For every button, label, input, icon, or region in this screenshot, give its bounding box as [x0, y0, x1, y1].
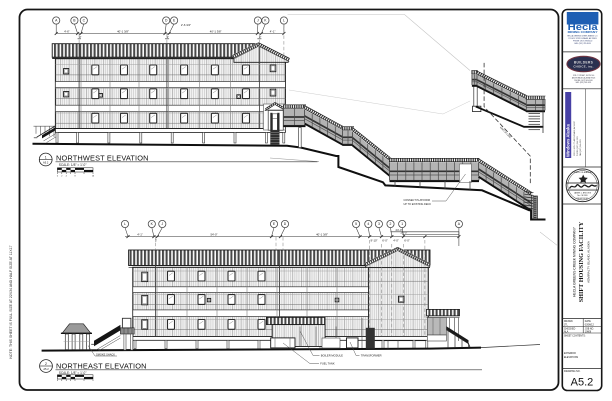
svg-text:10606: 10606 [585, 332, 592, 334]
svg-text:1: 1 [401, 222, 403, 226]
svg-text:6'-0": 6'-0" [404, 239, 410, 243]
svg-text:REGISTERED: REGISTERED [577, 198, 589, 200]
svg-text:SCALE: 1/8" = 1'-0": SCALE: 1/8" = 1'-0" [59, 163, 87, 167]
svg-text:HECLA GREENS CREEK MINING COMP: HECLA GREENS CREEK MINING COMPANY [573, 226, 577, 297]
svg-text:03/06/12: 03/06/12 [585, 325, 595, 327]
svg-text:SHEET CONTENTS:: SHEET CONTENTS: [564, 336, 586, 338]
svg-text:FAX: (907) 789-8143: FAX: (907) 789-8143 [574, 42, 590, 45]
svg-text:DATE: DATE [585, 320, 591, 323]
svg-text:JOB NO.: JOB NO. [585, 329, 595, 331]
svg-text:Windows Alaska: Windows Alaska [566, 123, 571, 157]
svg-text:JAMES L. BROOKS: JAMES L. BROOKS [574, 192, 592, 195]
svg-text:ALA: ALA [564, 331, 569, 334]
svg-text:No. CE 8320: No. CE 8320 [577, 195, 587, 197]
svg-text:MINING COMPANY: MINING COMPANY [568, 30, 598, 34]
svg-text:20'-0": 20'-0" [400, 231, 407, 235]
svg-text:2: 2 [45, 362, 47, 366]
svg-text:BOILER MODULE: BOILER MODULE [321, 353, 343, 357]
svg-text:A5.2: A5.2 [43, 161, 49, 165]
svg-text:NORTHWEST ELEVATION: NORTHWEST ELEVATION [56, 153, 149, 162]
svg-text:5: 5 [355, 222, 357, 226]
svg-text:40'-1 3/8": 40'-1 3/8" [210, 29, 222, 33]
svg-text:2: 2 [390, 222, 392, 226]
svg-text:L: L [124, 222, 126, 226]
svg-text:3: 3 [378, 222, 380, 226]
svg-text:DRAWING NO.: DRAWING NO. [564, 370, 581, 373]
svg-text:ELEVATIONS: ELEVATIONS [564, 356, 579, 359]
svg-text:PHONE: (907) 344-1203: PHONE: (907) 344-1203 [577, 136, 579, 156]
svg-text:CONNECT PLATFORM: CONNECT PLATFORM [404, 199, 430, 202]
svg-text:CHOICE, inc.: CHOICE, inc. [573, 64, 593, 68]
svg-text:40'-1 3/8": 40'-1 3/8" [117, 29, 129, 33]
svg-text:FAX: (907) 563-1011: FAX: (907) 563-1011 [576, 81, 592, 84]
svg-text:54'-0": 54'-0" [210, 232, 217, 236]
svg-text:EXTERIOR: EXTERIOR [564, 353, 576, 355]
svg-text:FAX: (907) 344-4203: FAX: (907) 344-4203 [579, 139, 582, 156]
svg-text:J: J [257, 19, 259, 23]
svg-text:NOTE: THIS SHEET IS FULL SIZE: NOTE: THIS SHEET IS FULL SIZE AT 22X34 A… [9, 245, 13, 358]
svg-text:6'-0": 6'-0" [382, 239, 388, 243]
svg-text:TRANSFORMER: TRANSFORMER [361, 353, 382, 357]
svg-text:40'-1 3/8": 40'-1 3/8" [316, 232, 328, 236]
svg-text:STATE OF ALASKA: STATE OF ALASKA [574, 171, 592, 174]
svg-text:SMOKE SHACK: SMOKE SHACK [96, 352, 115, 356]
svg-text:2201 E. 84TH CT. ANCHORAGE, AK: 2201 E. 84TH CT. ANCHORAGE, AK 99507 [573, 121, 576, 156]
svg-text:1: 1 [45, 155, 47, 159]
svg-text:L: L [283, 19, 285, 23]
svg-text:9'-10": 9'-10" [370, 239, 377, 243]
svg-text:J: J [161, 222, 163, 226]
svg-text:4'-1": 4'-1" [270, 29, 276, 33]
svg-text:4'-6": 4'-6" [64, 29, 70, 33]
svg-text:4'-0": 4'-0" [393, 239, 399, 243]
svg-text:FUEL TANK: FUEL TANK [320, 362, 335, 366]
svg-text:A5.2: A5.2 [571, 377, 594, 389]
svg-text:2'-6 3/4": 2'-6 3/4" [181, 23, 191, 27]
svg-text:DRAWN: DRAWN [564, 320, 573, 323]
svg-text:NORTHEAST ELEVATION: NORTHEAST ELEVATION [56, 361, 147, 370]
svg-text:ADMIRALTY ISLAND, ALASKA: ADMIRALTY ISLAND, ALASKA [587, 241, 591, 283]
svg-text:SHIFT HOUSING FACILITY: SHIFT HOUSING FACILITY [578, 221, 585, 302]
svg-text:4: 4 [367, 222, 369, 226]
svg-text:CHECKED: CHECKED [564, 329, 576, 331]
svg-text:UP TO EXISTING DECK: UP TO EXISTING DECK [404, 203, 432, 206]
svg-text:SCALE: 1/8" = 1'-0": SCALE: 1/8" = 1'-0" [59, 371, 87, 375]
svg-text:4'-1": 4'-1" [137, 232, 143, 236]
svg-text:A5.2: A5.2 [43, 367, 49, 371]
